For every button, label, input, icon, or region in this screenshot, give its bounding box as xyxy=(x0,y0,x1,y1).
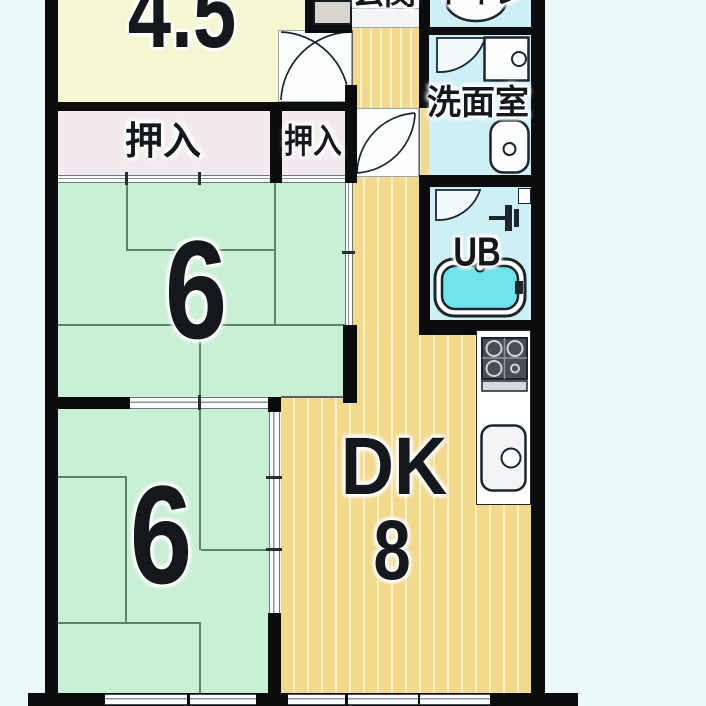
wall xyxy=(345,85,357,183)
shoe-cabinet xyxy=(313,0,352,25)
wall xyxy=(268,628,281,693)
rail-tick xyxy=(266,548,282,551)
tatami-seam xyxy=(201,549,269,551)
door-swing-icon xyxy=(279,31,351,101)
rail-tick xyxy=(198,395,201,410)
room-label-dk: DK xyxy=(341,426,448,508)
bath-shelf xyxy=(518,188,531,204)
room-label-closet-small: 押入 xyxy=(284,125,342,159)
room-label-unit-bath: UB xyxy=(453,232,500,273)
wall xyxy=(305,25,352,33)
window xyxy=(190,694,256,705)
tatami-seam xyxy=(57,622,201,624)
wall xyxy=(270,102,282,183)
room-label-4-5: 4.5 xyxy=(128,0,236,63)
room-label-6-upper: 6 xyxy=(165,220,227,360)
wall xyxy=(419,175,531,187)
tatami-seam xyxy=(126,183,128,251)
wall xyxy=(419,0,430,27)
tatami-seam xyxy=(199,409,201,550)
room-label-washroom: 洗面室 xyxy=(427,86,529,120)
doorway-hall xyxy=(352,108,419,177)
window xyxy=(420,694,490,705)
window xyxy=(348,694,418,705)
wall xyxy=(45,102,352,111)
stove-icon xyxy=(481,337,528,392)
wall xyxy=(268,397,281,412)
room-label-dk-size: 8 xyxy=(373,508,410,592)
sliding-door-upper6-dk xyxy=(345,183,353,325)
wall xyxy=(419,27,531,35)
washbasin-icon xyxy=(489,119,530,174)
floor-plan: 4.5 玄関 トイレ 洗面室 UB 押入 押入 6 6 DK 8 xyxy=(0,0,706,706)
tatami-seam xyxy=(57,476,125,478)
room-label-6-lower: 6 xyxy=(130,465,192,605)
doorway-room45 xyxy=(278,30,352,102)
window xyxy=(105,694,187,705)
sliding-door-lower6-dk xyxy=(269,412,280,613)
wall xyxy=(419,187,430,320)
rail-tick xyxy=(266,476,282,479)
genkan-floor xyxy=(352,28,419,108)
rail-tick xyxy=(125,172,128,185)
room-label-toilet: トイレ xyxy=(438,0,522,8)
wall xyxy=(45,397,130,409)
wall xyxy=(268,613,281,628)
fusuma-closet-main xyxy=(57,175,270,183)
room-label-closet-main: 押入 xyxy=(125,123,201,161)
washing-machine-pan-icon xyxy=(483,36,530,82)
room-boundary-line xyxy=(281,396,343,398)
rail-tick xyxy=(342,251,355,254)
window xyxy=(288,694,345,705)
room-label-genkan: 玄関 xyxy=(352,0,416,9)
tatami-seam xyxy=(125,476,127,623)
fusuma-closet-small xyxy=(282,175,345,183)
wall xyxy=(531,0,545,706)
bath-faucet-icon xyxy=(489,205,521,231)
room-boundary-line xyxy=(419,108,420,175)
genkan-step xyxy=(352,8,419,28)
kitchen-sink-icon xyxy=(480,424,527,492)
rail-tick xyxy=(198,172,201,185)
wall xyxy=(343,325,357,403)
door-leaf-icon xyxy=(353,109,418,176)
tatami-seam xyxy=(199,624,201,693)
tatami-seam xyxy=(274,183,276,326)
